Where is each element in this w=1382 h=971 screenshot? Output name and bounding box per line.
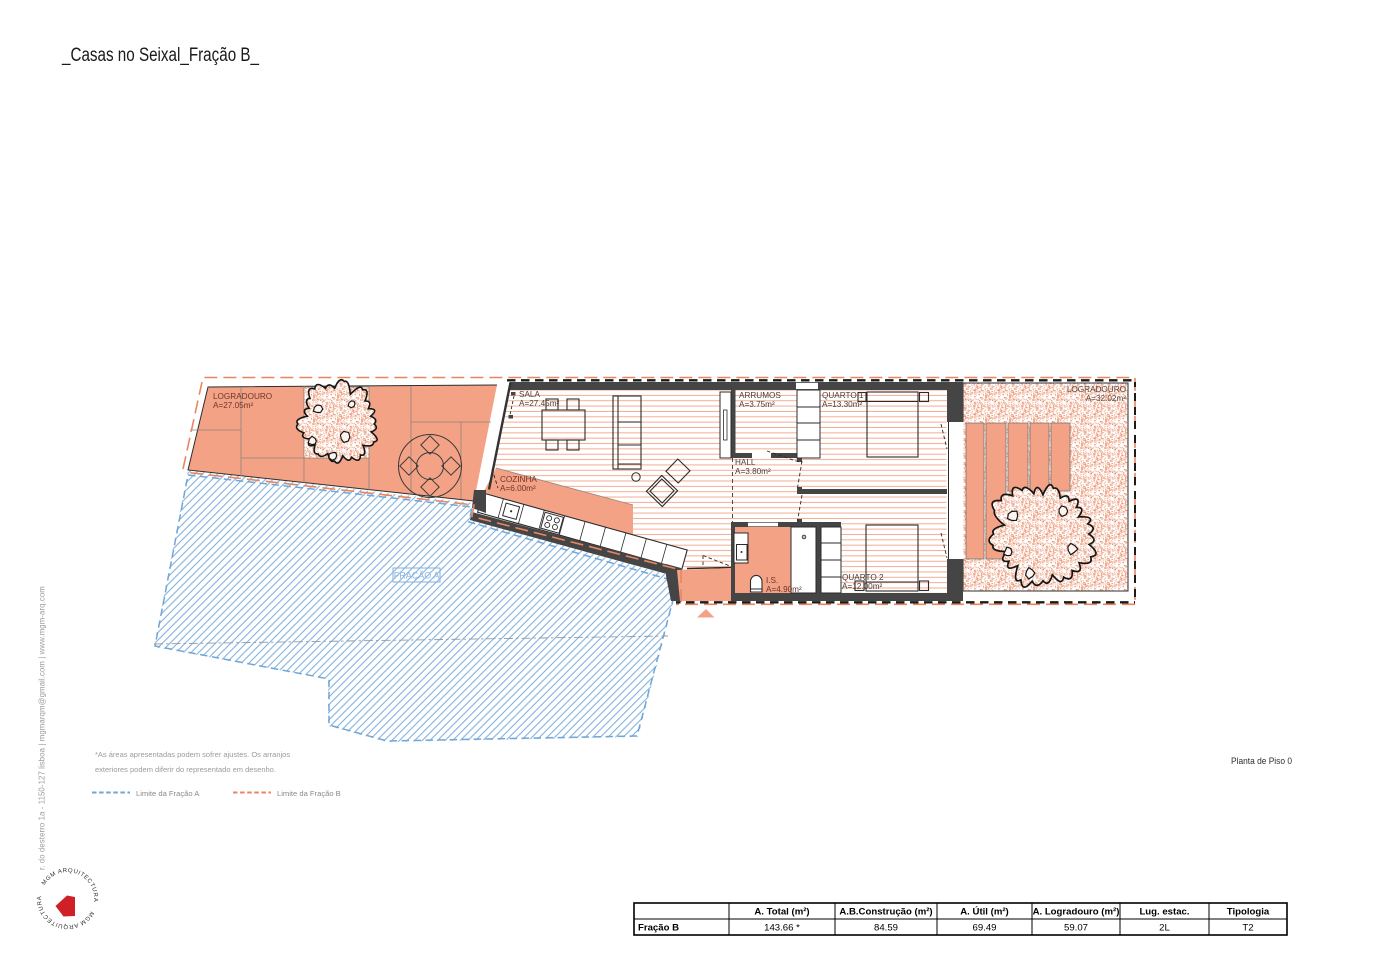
svg-text:84.59: 84.59 xyxy=(874,923,898,934)
svg-text:A=12.00m²: A=12.00m² xyxy=(842,582,883,591)
svg-text:2L: 2L xyxy=(1159,923,1170,934)
svg-text:Tipologia: Tipologia xyxy=(1227,907,1270,918)
svg-text:Fração B: Fração B xyxy=(638,923,679,934)
svg-text:T2: T2 xyxy=(1242,923,1253,934)
svg-text:A=27.45m²: A=27.45m² xyxy=(519,399,560,408)
svg-text:A=3.75m²: A=3.75m² xyxy=(739,400,775,409)
svg-text:HALL: HALL xyxy=(735,458,756,467)
svg-text:A=32.02m²: A=32.02m² xyxy=(1086,394,1127,403)
svg-text:SALA: SALA xyxy=(519,390,540,399)
svg-text:LOGRADOURO: LOGRADOURO xyxy=(213,392,272,401)
svg-text:FRAÇÃO A: FRAÇÃO A xyxy=(394,571,440,581)
svg-text:69.49: 69.49 xyxy=(972,923,996,934)
svg-text:Planta de Piso 0: Planta de Piso 0 xyxy=(1231,755,1292,766)
svg-text:A. Útil (m²): A. Útil (m²) xyxy=(960,906,1009,918)
svg-text:Lug. estac.: Lug. estac. xyxy=(1139,907,1189,918)
svg-text:COZINHA: COZINHA xyxy=(500,475,537,484)
svg-text:A.B.Construção (m²): A.B.Construção (m²) xyxy=(839,907,932,918)
svg-text:QUARTO 1: QUARTO 1 xyxy=(822,391,864,400)
svg-text:A=27.05m²: A=27.05m² xyxy=(213,401,254,410)
svg-text:143.66 *: 143.66 * xyxy=(764,923,800,934)
svg-text:*As áreas apresentadas podem s: *As áreas apresentadas podem sofrer ajus… xyxy=(95,750,290,759)
svg-text:r. do desterro 1a - 1150-127 l: r. do desterro 1a - 1150-127 lisboa | mg… xyxy=(38,586,47,870)
svg-text:LOGRADOURO: LOGRADOURO xyxy=(1067,385,1126,394)
svg-text:ARRUMOS: ARRUMOS xyxy=(739,391,781,400)
svg-text:A=6.00m²: A=6.00m² xyxy=(500,484,536,493)
svg-text:A=13.30m²: A=13.30m² xyxy=(822,400,863,409)
svg-text:_Casas no Seixal_Fração B_: _Casas no Seixal_Fração B_ xyxy=(61,45,259,66)
svg-text:Limite da Fração A: Limite da Fração A xyxy=(136,789,200,798)
svg-text:A. Logradouro (m²): A. Logradouro (m²) xyxy=(1033,907,1120,918)
svg-text:QUARTO 2: QUARTO 2 xyxy=(842,573,884,582)
svg-text:exteriores podem diferir do re: exteriores podem diferir do representado… xyxy=(95,765,276,774)
svg-text:A. Total (m²): A. Total (m²) xyxy=(754,907,809,918)
svg-text:Limite da Fração B: Limite da Fração B xyxy=(277,789,341,798)
svg-text:I.S.: I.S. xyxy=(766,576,778,585)
svg-text:59.07: 59.07 xyxy=(1064,923,1088,934)
svg-text:A=4.90m²: A=4.90m² xyxy=(766,585,802,594)
svg-text:A=3.80m²: A=3.80m² xyxy=(735,467,771,476)
